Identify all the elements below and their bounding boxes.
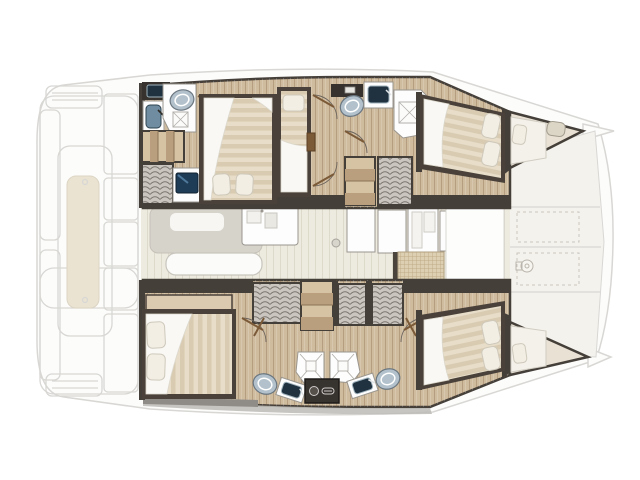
salon-table-inset bbox=[170, 213, 224, 231]
upper-aft-stairs bbox=[142, 131, 184, 162]
foredeck-panels bbox=[508, 131, 604, 357]
pillow bbox=[212, 173, 230, 195]
lower-salon-wall-b bbox=[403, 280, 510, 293]
yacht-floor-plan bbox=[0, 0, 640, 480]
wash-basin bbox=[368, 86, 389, 103]
upper-mid-stairs bbox=[345, 157, 375, 205]
shower-drain bbox=[173, 112, 188, 127]
lower-wardrobe-mid-1 bbox=[338, 284, 366, 325]
lower-bow-berth bbox=[511, 326, 546, 372]
pillow bbox=[235, 174, 253, 196]
head-shelf bbox=[146, 295, 232, 310]
pillow bbox=[512, 124, 528, 145]
lower-wardrobe-aft bbox=[253, 283, 301, 323]
upper-aft-bed bbox=[199, 94, 277, 204]
support-pole bbox=[332, 239, 340, 247]
galley-counter bbox=[242, 205, 298, 245]
upper-single-berth bbox=[277, 87, 311, 197]
upper-wardrobe-mid bbox=[378, 157, 412, 205]
pillow bbox=[512, 343, 528, 364]
lower-aft-bed bbox=[142, 295, 236, 399]
vanity-sink bbox=[147, 85, 164, 97]
lower-stairs bbox=[301, 281, 333, 330]
salon-bench bbox=[166, 253, 262, 275]
pillow bbox=[283, 95, 304, 111]
wash-basin bbox=[146, 105, 161, 128]
foredeck-ghost bbox=[508, 131, 604, 357]
cockpit-table bbox=[67, 176, 99, 308]
tv-cabinet bbox=[173, 168, 201, 202]
upper-wardrobe-aft bbox=[142, 164, 173, 204]
lower-wardrobe-mid-2 bbox=[372, 284, 403, 325]
pillow bbox=[146, 322, 165, 349]
floor-plan-canvas bbox=[0, 0, 640, 480]
pillow bbox=[147, 354, 166, 381]
lower-salon-wall-a bbox=[143, 280, 253, 293]
washer-cabinet bbox=[305, 379, 339, 403]
deck-hatch bbox=[546, 121, 566, 137]
